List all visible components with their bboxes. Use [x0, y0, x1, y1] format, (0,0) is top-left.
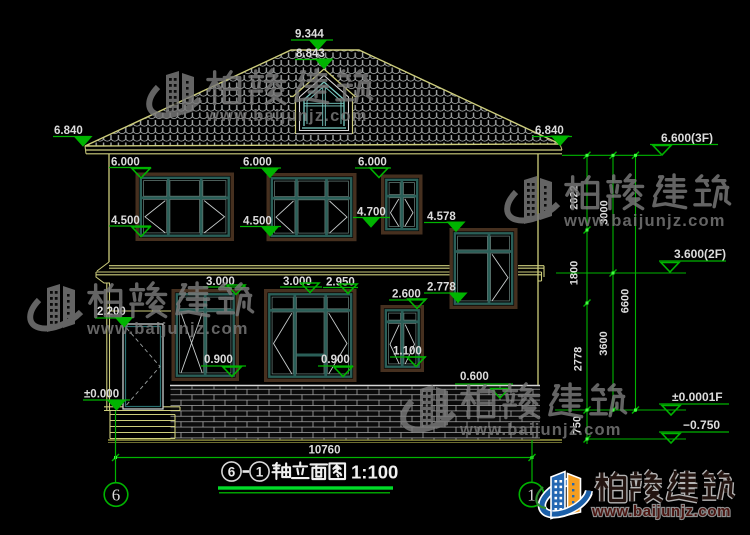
svg-text:8.843: 8.843: [296, 48, 325, 60]
svg-text:www.baijunjz.com: www.baijunjz.com: [205, 107, 368, 125]
svg-text:2.950: 2.950: [326, 277, 355, 289]
svg-text:0.900: 0.900: [321, 354, 350, 366]
svg-text:9.344: 9.344: [295, 29, 324, 41]
svg-text:0.600: 0.600: [460, 371, 489, 383]
svg-text:1.100: 1.100: [393, 346, 422, 358]
svg-text:6600: 6600: [620, 289, 632, 313]
svg-text:4.500: 4.500: [111, 215, 140, 227]
svg-text:www.baijunjz.com: www.baijunjz.com: [459, 421, 622, 439]
svg-text:6.000: 6.000: [358, 157, 387, 169]
svg-text:1:100: 1:100: [351, 462, 398, 483]
svg-text:1800: 1800: [569, 261, 581, 285]
svg-text:www.baijunjz.com: www.baijunjz.com: [563, 212, 726, 230]
svg-text:±0.000: ±0.000: [84, 389, 119, 401]
svg-text:www.baijunjz.com: www.baijunjz.com: [591, 503, 731, 520]
svg-text:2.778: 2.778: [427, 282, 456, 294]
svg-text:6.000: 6.000: [243, 157, 272, 169]
svg-text:www.baijunjz.com: www.baijunjz.com: [86, 320, 249, 338]
svg-text:10760: 10760: [309, 445, 341, 457]
svg-text:1: 1: [256, 465, 264, 480]
svg-text:4.578: 4.578: [427, 211, 456, 223]
svg-text:6: 6: [228, 465, 236, 480]
svg-text:6.840: 6.840: [54, 125, 83, 137]
svg-text:2778: 2778: [573, 347, 585, 371]
svg-text:0.900: 0.900: [204, 354, 233, 366]
svg-text:3600: 3600: [598, 331, 610, 355]
svg-text:6.600(3F): 6.600(3F): [661, 131, 713, 145]
svg-text:6: 6: [112, 486, 121, 505]
svg-text:6.840: 6.840: [535, 125, 564, 137]
svg-text:−0.750: −0.750: [683, 418, 720, 432]
svg-text:±0.0001F: ±0.0001F: [672, 390, 723, 404]
svg-text:3.000: 3.000: [283, 276, 312, 288]
svg-text:3.600(2F): 3.600(2F): [674, 247, 726, 261]
svg-text:4.700: 4.700: [357, 207, 386, 219]
svg-text:4.500: 4.500: [243, 216, 272, 228]
svg-text:1: 1: [527, 486, 536, 505]
svg-text:6.000: 6.000: [111, 157, 140, 169]
